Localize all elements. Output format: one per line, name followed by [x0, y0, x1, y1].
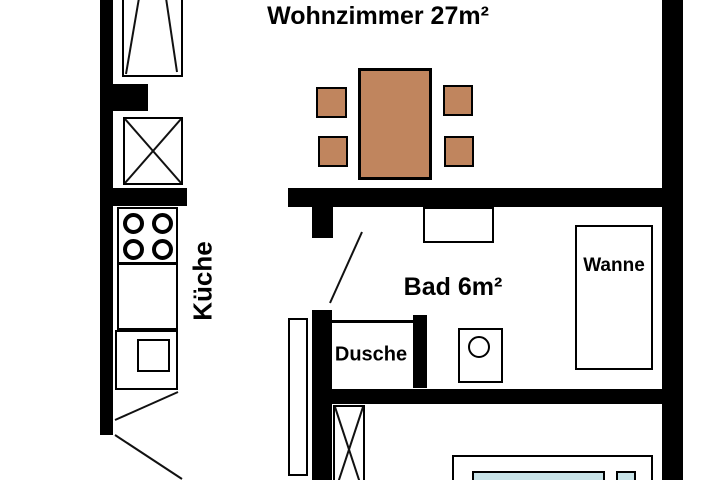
bedroom-wardrobe-crossed: [333, 405, 365, 480]
bed-pillow: [616, 471, 636, 480]
stove: [117, 207, 178, 264]
burner-icon: [123, 239, 144, 260]
wall-left-stub: [100, 84, 148, 111]
bed: [452, 455, 653, 480]
washing-machine-door-icon: [468, 336, 490, 358]
kitchen-sink-cabinet: [115, 330, 178, 390]
burner-icon: [123, 213, 144, 234]
bathtub: Wanne: [575, 225, 653, 370]
kitchen-unit-drainer: [122, 0, 183, 77]
bathroom-label: Bad 6m²: [404, 273, 503, 302]
burner-icon: [152, 239, 173, 260]
wall-bath-door-stub: [312, 207, 333, 238]
wall-bath-bottom: [312, 389, 683, 404]
bathroom-vanity: [423, 207, 494, 243]
wall-living-bottom: [288, 188, 683, 207]
dining-table: [358, 68, 432, 180]
wall-shower-stub: [413, 315, 427, 388]
chair: [318, 136, 348, 167]
bathtub-label: Wanne: [577, 255, 651, 277]
living-room-label: Wohnzimmer 27m²: [267, 2, 489, 31]
burner-icon: [152, 213, 173, 234]
shower-glass-line: [332, 320, 413, 323]
kitchen-label: Küche: [188, 241, 219, 320]
sink-basin: [137, 339, 170, 372]
wall-right: [662, 0, 683, 480]
chair: [444, 136, 474, 167]
chair: [316, 87, 347, 118]
shower-label: Dusche: [335, 344, 407, 367]
bed-mattress: [472, 471, 605, 480]
kitchen-cabinet-crossed: [123, 117, 183, 185]
floor-plan: Wanne Wohnzimmer 27m² Küche Bad 6m² Dusc…: [0, 0, 720, 480]
washing-machine: [458, 328, 503, 383]
hallway-closet: [288, 318, 308, 476]
chair: [443, 85, 473, 116]
wall-left: [100, 0, 113, 435]
kitchen-counter: [117, 263, 178, 330]
wall-kitchen-band: [100, 188, 187, 206]
